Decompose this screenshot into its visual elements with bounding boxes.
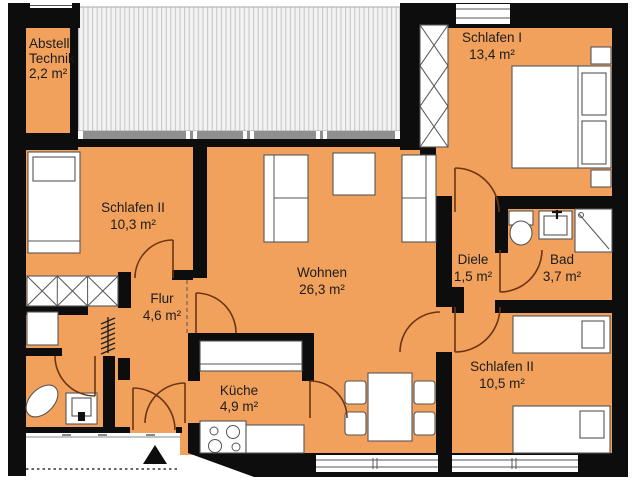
svg-text:2,2 m²: 2,2 m² xyxy=(29,66,68,81)
side-table xyxy=(333,153,375,195)
svg-text:4,9 m²: 4,9 m² xyxy=(220,399,259,414)
wardrobe-schlafen2-left xyxy=(27,276,118,306)
svg-text:10,5 m²: 10,5 m² xyxy=(479,376,525,391)
pillow xyxy=(582,121,606,164)
pillow xyxy=(580,411,604,438)
chair xyxy=(345,412,366,435)
wc-toilet xyxy=(66,393,97,424)
chair xyxy=(345,381,366,404)
svg-text:Schlafen I: Schlafen I xyxy=(462,30,522,45)
svg-text:1,5 m²: 1,5 m² xyxy=(454,269,493,284)
pillow xyxy=(582,321,604,348)
kitchen-counter-top xyxy=(200,341,302,371)
window-schlafen1 xyxy=(456,4,510,24)
dining-table xyxy=(368,373,412,441)
floor-plan-page: Abstell Technik 2,2 m² Schlafen I 13,4 m… xyxy=(0,0,640,485)
svg-text:26,3 m²: 26,3 m² xyxy=(299,282,345,297)
single-bed-top xyxy=(513,316,610,353)
svg-text:Technik: Technik xyxy=(29,51,75,66)
shower xyxy=(575,209,612,252)
chair xyxy=(414,412,435,435)
window-schlafen2-bottom xyxy=(452,455,578,472)
shelf xyxy=(27,312,58,345)
svg-text:Schlafen II: Schlafen II xyxy=(101,200,165,215)
nightstand xyxy=(591,170,611,187)
svg-text:Schlafen II: Schlafen II xyxy=(470,359,534,374)
chair xyxy=(414,381,435,404)
kitchen-counter-bottom xyxy=(246,425,304,453)
svg-text:10,3 m²: 10,3 m² xyxy=(110,217,156,232)
svg-text:4,6 m²: 4,6 m² xyxy=(143,308,182,323)
single-bed-bottom xyxy=(513,406,610,453)
svg-text:Küche: Küche xyxy=(220,383,258,398)
svg-text:Bad: Bad xyxy=(550,252,574,267)
svg-text:13,4 m²: 13,4 m² xyxy=(469,47,515,62)
nightstand xyxy=(591,47,611,64)
stove xyxy=(200,421,246,453)
toilet xyxy=(509,211,533,245)
entrance-porch xyxy=(26,433,180,470)
svg-text:Diele: Diele xyxy=(458,252,489,267)
label-kueche: Küche 4,9 m² xyxy=(220,383,259,414)
pillow xyxy=(582,73,606,115)
terrace-glazing-band xyxy=(78,131,400,139)
sofa-right xyxy=(402,155,436,242)
double-bed xyxy=(512,66,611,168)
window-wohnen-bottom xyxy=(316,455,438,472)
sofa-left xyxy=(264,155,308,242)
svg-text:Abstell: Abstell xyxy=(29,36,70,51)
terrace-decking xyxy=(78,7,400,139)
floor-plan: Abstell Technik 2,2 m² Schlafen I 13,4 m… xyxy=(0,0,640,485)
svg-text:Wohnen: Wohnen xyxy=(297,265,347,280)
bathroom-sink xyxy=(539,210,572,239)
wardrobe-schlafen1 xyxy=(420,25,448,147)
window-top-left xyxy=(30,3,72,8)
svg-text:Flur: Flur xyxy=(150,291,174,306)
svg-text:3,7 m²: 3,7 m² xyxy=(543,269,582,284)
single-bed-left xyxy=(28,152,80,253)
pillow xyxy=(33,157,75,181)
